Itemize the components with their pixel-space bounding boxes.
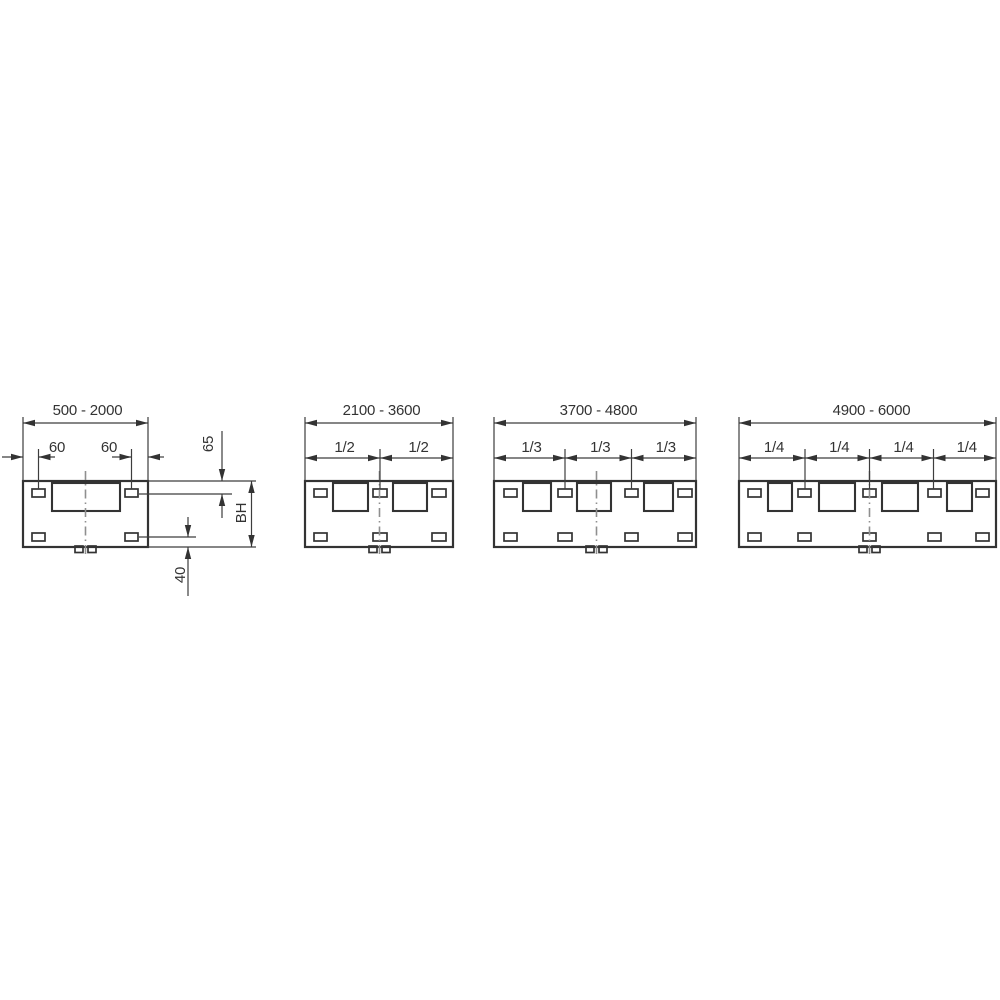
- panel-3-arrowhead: [553, 455, 565, 461]
- panel-3-fraction-dimension-label: 1/3: [521, 439, 541, 456]
- panel-2-cutout-window: [393, 483, 427, 511]
- panel-4-mounting-slot-bottom: [928, 533, 941, 541]
- panel-2-fraction-dimension-label: 1/2: [334, 439, 354, 456]
- panel-4-mounting-slot-bottom: [976, 533, 989, 541]
- panel-4-range-dimension-label: 4900 - 6000: [833, 402, 911, 419]
- panel-2-arrowhead: [368, 455, 380, 461]
- panel-4-mounting-slot-top: [928, 489, 941, 497]
- panel-2-mounting-slot-bottom: [432, 533, 446, 541]
- panel-4-arrowhead: [984, 420, 996, 426]
- panel-1-arrowhead: [248, 535, 254, 547]
- panel-3-arrowhead: [565, 455, 577, 461]
- panel-1-range-dimension-label: 500 - 2000: [53, 402, 123, 419]
- panel-2-range-dimension-label: 2100 - 3600: [343, 402, 421, 419]
- panel-4-arrowhead: [922, 455, 934, 461]
- panel-1-mounting-slot-bottom: [125, 533, 138, 541]
- panel-1-arrowhead: [185, 525, 191, 537]
- panel-4-fraction-dimension-label: 1/4: [829, 439, 849, 456]
- panel-2-cutout-window: [333, 483, 368, 511]
- panel-4-mounting-slot-top: [976, 489, 989, 497]
- panel-3-arrowhead: [684, 455, 696, 461]
- panel-1-mounting-slot-top: [32, 489, 45, 497]
- panel-4-arrowhead: [805, 455, 817, 461]
- panel-1-arrowhead: [219, 469, 225, 481]
- panel-3-mounting-slot-bottom: [625, 533, 638, 541]
- panel-1-mounting-slot-top: [125, 489, 138, 497]
- panel-4-fraction-dimension-label: 1/4: [957, 439, 977, 456]
- panel-2-arrowhead: [441, 420, 453, 426]
- panel-3-mounting-slot-top: [625, 489, 638, 497]
- panel-2-arrowhead: [441, 455, 453, 461]
- panel-4-mounting-slot-bottom: [748, 533, 761, 541]
- panel-2-arrowhead: [305, 455, 317, 461]
- panel-3-mounting-slot-top: [678, 489, 692, 497]
- panel-4-arrowhead: [793, 455, 805, 461]
- panel-3-cutout-window: [644, 483, 673, 511]
- panel-1-arrowhead: [148, 454, 160, 460]
- technical-drawing: 500 - 20002100 - 36001/21/23700 - 48001/…: [0, 0, 1000, 1000]
- panel-3-mounting-slot-top: [558, 489, 572, 497]
- panel-2-mounting-slot-top: [314, 489, 327, 497]
- panel-2-arrowhead: [305, 420, 317, 426]
- panel-3-fraction-dimension-label: 1/3: [656, 439, 676, 456]
- panel-3-arrowhead: [494, 455, 506, 461]
- panel-1-arrowhead: [136, 420, 148, 426]
- panel-4-arrowhead: [858, 455, 870, 461]
- panel-4-arrowhead: [870, 455, 882, 461]
- panel-4-cutout-window: [768, 483, 792, 511]
- panel-3-range-dimension-label: 3700 - 4800: [560, 402, 638, 419]
- panel-1-body-height-label: BH: [233, 503, 250, 523]
- panel-1-arrowhead: [11, 454, 23, 460]
- panel-1-arrowhead: [120, 454, 132, 460]
- panel-4-mounting-slot-bottom: [798, 533, 811, 541]
- panel-4-cutout-window: [947, 483, 972, 511]
- panel-3-arrowhead: [494, 420, 506, 426]
- panel-4-arrowhead: [739, 420, 751, 426]
- panel-1-slot-offset-label: 60: [101, 439, 117, 456]
- panel-3-arrowhead: [684, 420, 696, 426]
- panel-3-fraction-dimension-label: 1/3: [590, 439, 610, 456]
- panel-1-bottom-offset-label: 40: [172, 567, 189, 583]
- panel-1-arrowhead: [23, 420, 35, 426]
- panel-2-arrowhead: [380, 455, 392, 461]
- drawing-page: 500 - 20002100 - 36001/21/23700 - 48001/…: [0, 0, 1000, 1000]
- panel-2-mounting-slot-top: [432, 489, 446, 497]
- panel-2-mounting-slot-bottom: [314, 533, 327, 541]
- panel-1-arrowhead: [185, 547, 191, 559]
- panel-3-cutout-window: [523, 483, 551, 511]
- panel-3-outline: [494, 481, 696, 547]
- panel-1-arrowhead: [248, 481, 254, 493]
- panel-3-cutout-window: [577, 483, 611, 511]
- panel-3-mounting-slot-top: [504, 489, 517, 497]
- panel-4-fraction-dimension-label: 1/4: [893, 439, 913, 456]
- panel-4-arrowhead: [934, 455, 946, 461]
- panel-4-mounting-slot-top: [748, 489, 761, 497]
- panel-3-mounting-slot-bottom: [504, 533, 517, 541]
- panel-4-cutout-window: [819, 483, 855, 511]
- panel-4-cutout-window: [882, 483, 918, 511]
- panel-4-arrowhead: [984, 455, 996, 461]
- panel-3-arrowhead: [620, 455, 632, 461]
- panel-1-mounting-slot-bottom: [32, 533, 45, 541]
- panel-2-fraction-dimension-label: 1/2: [408, 439, 428, 456]
- panel-3-mounting-slot-bottom: [678, 533, 692, 541]
- panel-4-mounting-slot-top: [798, 489, 811, 497]
- panel-1-top-offset-label: 65: [200, 436, 217, 452]
- panel-4-fraction-dimension-label: 1/4: [764, 439, 784, 456]
- panel-1-slot-offset-label: 60: [49, 439, 65, 456]
- panel-4-outline: [739, 481, 996, 547]
- panel-3-arrowhead: [632, 455, 644, 461]
- panel-1-arrowhead: [219, 494, 225, 506]
- panel-4-arrowhead: [739, 455, 751, 461]
- panel-3-mounting-slot-bottom: [558, 533, 572, 541]
